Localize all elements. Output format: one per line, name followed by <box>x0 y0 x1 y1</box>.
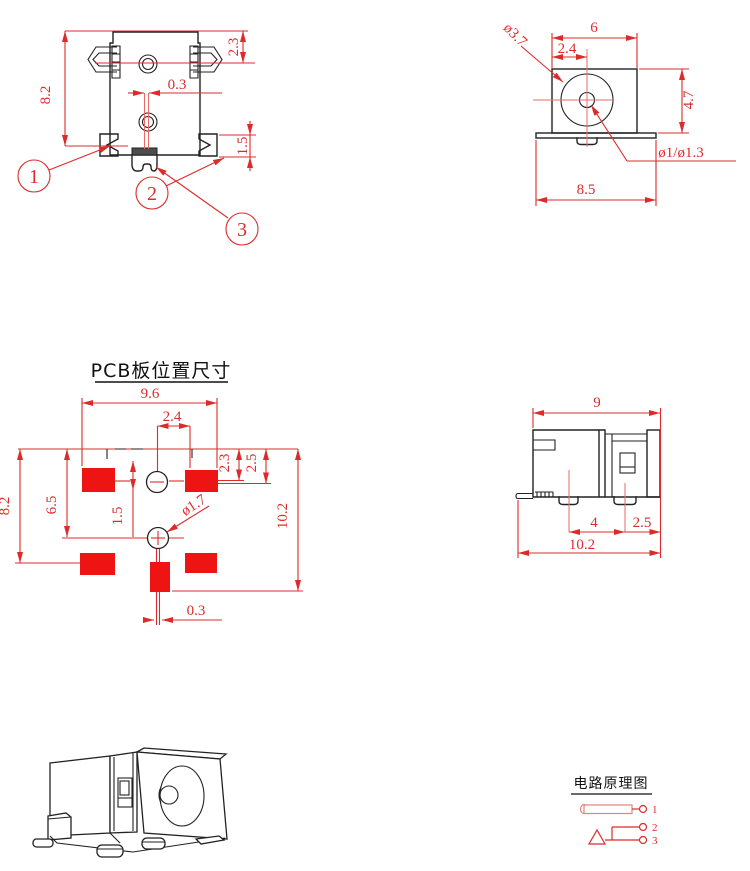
dim-label-pin-offset: 2.4 <box>163 409 182 425</box>
left-solder-tab <box>100 134 118 156</box>
dim-label-flange-width: 8.5 <box>577 182 596 198</box>
upper-rivet-hole <box>139 55 157 73</box>
right-crimp-strip <box>190 46 198 78</box>
dim-label-overall-height: 8.2 <box>0 497 13 516</box>
pad-lower-left <box>80 553 115 575</box>
pcb-view-title: PCB板位置尺寸 <box>91 360 232 382</box>
barrel-face-outline <box>536 69 656 145</box>
dim-label-body-height: 4.7 <box>681 90 697 109</box>
front-view: 8.2 2.3 0.3 1.5 1 2 3 <box>18 31 258 245</box>
callout-2-label: 2 <box>147 183 157 205</box>
side-profile-dimensions: 9 4 2.5 10.2 <box>518 395 661 558</box>
dim-label-width: 6 <box>590 20 598 36</box>
callout-3-label: 3 <box>237 219 247 241</box>
pin-label-3: 3 <box>652 835 658 847</box>
pcb-holes <box>107 449 192 549</box>
iso-foot-a <box>97 845 123 857</box>
pad-bottom-center <box>150 562 170 592</box>
side-profile-outline <box>516 430 660 505</box>
center-tab-bar <box>132 148 157 155</box>
pin-label-1: 1 <box>652 804 658 816</box>
dim-label-tab-height: 1.5 <box>235 137 251 156</box>
side-profile-view: 9 4 2.5 10.2 <box>516 395 661 558</box>
dim-label-center-offset: 2.4 <box>558 41 577 57</box>
dim-label-height: 8.2 <box>38 86 54 105</box>
dim-label-body-height: 6.5 <box>44 496 60 515</box>
left-crimp-strip <box>112 46 120 78</box>
pad-upper-right <box>185 470 218 492</box>
dim-label-total-width: 10.2 <box>569 537 595 553</box>
dim-label-slot-width: 0.3 <box>168 77 187 93</box>
pcb-layout-view: PCB板位置尺寸 9.6 2.4 8.2 6.5 1.5 <box>0 360 303 625</box>
front-view-callouts: 1 2 3 <box>18 146 258 245</box>
pin-terminal-2 <box>640 824 647 831</box>
pad-lower-right <box>185 553 217 573</box>
center-solder-tab <box>132 155 157 171</box>
front-view-body-outline <box>88 32 222 171</box>
schematic-symbols: 1 2 3 <box>581 804 659 847</box>
dim-label-foot-pitch: 4 <box>590 515 598 531</box>
dim-label-foot-edge: 2.5 <box>633 515 652 531</box>
dim-label-pin-dia: ø1/ø1.3 <box>658 145 703 161</box>
schematic-view: 电路原理图 1 2 3 <box>571 776 658 847</box>
right-spring-wing <box>193 47 222 72</box>
dim-label-slot-width: 0.3 <box>187 603 206 619</box>
dim-label-top-offset: 2.3 <box>226 38 242 57</box>
dim-label-width: 9 <box>593 395 601 411</box>
barrel-face-view: 6 2.4 4.7 8.5 ø3.7 ø1/ø1.3 <box>500 20 736 206</box>
callout-1-label: 1 <box>29 166 39 188</box>
iso-foot-b <box>142 838 165 849</box>
pin-label-2: 2 <box>652 822 658 834</box>
barrel-sleeve-symbol <box>584 805 632 814</box>
dim-label-pad-top: 2.3 <box>217 454 233 473</box>
drawing-canvas: 8.2 2.3 0.3 1.5 1 2 3 <box>0 0 750 871</box>
dim-label-pad-span: 9.6 <box>141 386 160 402</box>
technical-drawing-sheet: 8.2 2.3 0.3 1.5 1 2 3 <box>0 0 750 871</box>
dim-label-hole-offset: 1.5 <box>110 507 126 526</box>
pcb-body-outline-fragments <box>107 449 192 459</box>
dim-label-total-height: 10.2 <box>275 503 291 529</box>
switch-contact-symbol <box>589 830 605 844</box>
isometric-view <box>33 748 227 857</box>
left-spring-wing <box>88 47 117 72</box>
barrel-face-dimensions: 6 2.4 4.7 8.5 ø3.7 ø1/ø1.3 <box>500 20 736 206</box>
pin-terminal-3 <box>640 837 647 844</box>
right-solder-tab <box>199 134 217 156</box>
schematic-title: 电路原理图 <box>574 776 649 792</box>
iso-left-pin <box>33 839 53 847</box>
dim-label-barrel-dia: ø3.7 <box>500 20 530 50</box>
pin-terminal-1 <box>640 806 647 813</box>
pad-upper-left <box>82 468 115 492</box>
dim-label-hole-top: 2.5 <box>244 454 260 473</box>
